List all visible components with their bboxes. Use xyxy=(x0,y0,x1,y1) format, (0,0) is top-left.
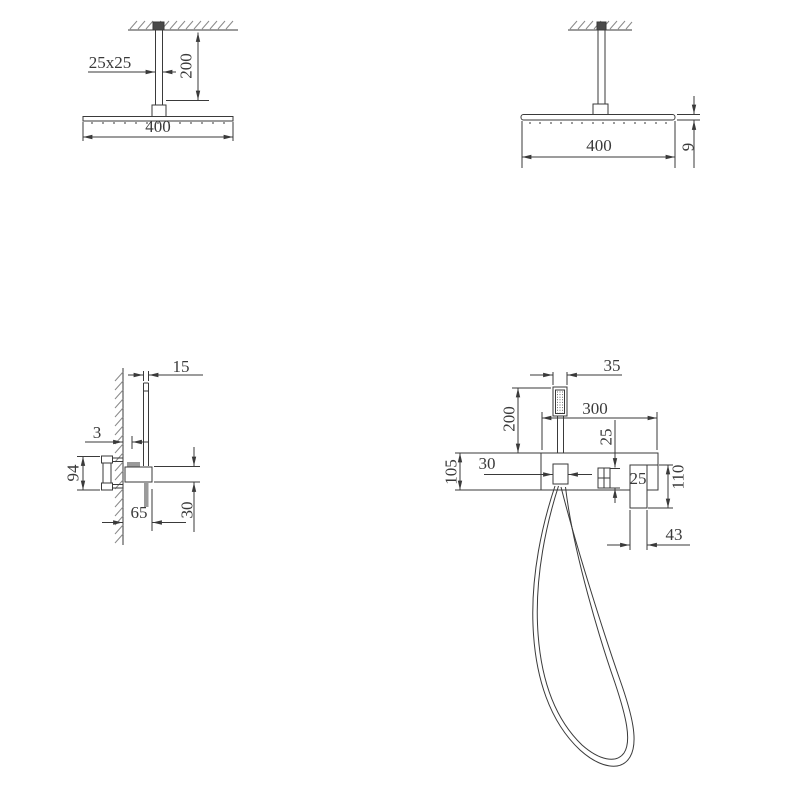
dim-arm-length: 200 xyxy=(177,53,196,79)
dim-spout-width: 43 xyxy=(666,525,683,544)
shower-hose xyxy=(537,486,627,759)
dim-bracket-height: 30 xyxy=(178,502,197,519)
holder-bracket xyxy=(125,467,152,482)
dim-head-width: 400 xyxy=(145,117,171,136)
technical-drawing-page: 400 200 25x25 400 9 xyxy=(0,0,800,800)
dim-projection: 65 xyxy=(131,503,148,522)
dim-wall-gap: 3 xyxy=(93,423,102,442)
dim-handset-width: 35 xyxy=(604,356,621,375)
arm-connector xyxy=(593,104,608,115)
valve-cap-top xyxy=(102,456,113,463)
dim-knob-drop: 25 xyxy=(597,429,616,446)
dim-bar-height: 105 xyxy=(442,459,461,485)
valve-cap-bottom xyxy=(102,483,113,490)
view-ceiling-shower-front: 400 200 25x25 xyxy=(83,21,238,141)
dim-holder-width: 30 xyxy=(479,454,496,473)
arm-connector xyxy=(152,105,166,117)
handset-holder xyxy=(553,464,568,484)
ceiling-mount-square xyxy=(153,22,164,30)
dim-spout-height: 110 xyxy=(669,465,688,490)
valve-body xyxy=(103,463,111,483)
view-ceiling-shower-side: 400 9 xyxy=(521,21,700,168)
dim-valve-height: 94 xyxy=(64,464,83,482)
ceiling-mount-square xyxy=(597,22,606,30)
spray-nozzles xyxy=(530,122,666,124)
dim-arm-section: 25x25 xyxy=(89,53,132,72)
view-hand-shower-side: 15 3 94 30 65 xyxy=(64,357,204,545)
dim-spout-label: 25 xyxy=(630,469,647,488)
holder-clip xyxy=(127,462,140,467)
dim-head-thickness: 9 xyxy=(679,143,698,152)
shower-hose xyxy=(533,486,634,766)
view-hand-shower-front: 35 200 300 105 30 25 25 xyxy=(442,356,691,766)
dim-handset-drop: 200 xyxy=(500,406,519,432)
technical-drawing: 400 200 25x25 400 9 xyxy=(0,0,800,800)
dim-handset-width: 15 xyxy=(173,357,190,376)
dim-bar-width: 300 xyxy=(582,399,608,418)
dim-head-width: 400 xyxy=(586,136,612,155)
shower-head xyxy=(521,115,675,121)
ceiling-hatch xyxy=(130,21,233,29)
